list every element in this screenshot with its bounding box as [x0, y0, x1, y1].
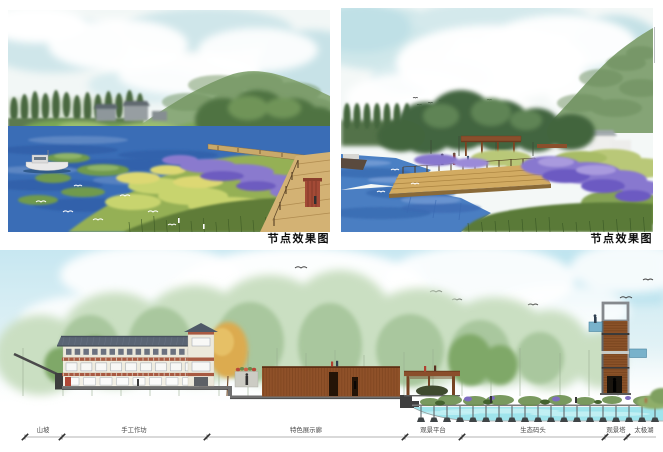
zone-label-dock: 生态码头: [520, 425, 546, 434]
section-elevation: [0, 250, 663, 433]
eco-dock-water: [412, 405, 663, 423]
workshop-building: [57, 336, 205, 386]
slide: 节点效果图: [0, 0, 663, 452]
zone-label-tower: 观景塔: [606, 425, 626, 434]
zone-label-gallery: 特色展示廊: [290, 425, 323, 434]
dimension-line: 山坡 手工作坊 特色展示廊 观景平台 生态码头 观景塔 太极湖: [0, 424, 663, 450]
section-drawing: [0, 250, 663, 428]
zone-label-workshop: 手工作坊: [121, 425, 147, 434]
deck-wetland-scene: [341, 8, 653, 232]
gray-wall: [235, 367, 258, 387]
red-kiosk: [303, 178, 322, 207]
zone-label-platform: 观景平台: [420, 425, 446, 434]
workshop-tower: [184, 323, 218, 386]
dimension-strip: 山坡 手工作坊 特色展示廊 观景平台 生态码头 观景塔 太极湖: [0, 424, 663, 452]
zone-label-hillside: 山坡: [37, 425, 50, 434]
rendering-node-left: [8, 10, 330, 232]
zone-label-lake: 太极湖: [634, 425, 653, 434]
lake-wetland-scene: [8, 10, 330, 232]
rendering-node-right: [341, 8, 653, 232]
right-edge-artifact: [654, 27, 655, 63]
caption-right: 节点效果图: [341, 233, 653, 246]
caption-left: 节点效果图: [8, 233, 330, 246]
